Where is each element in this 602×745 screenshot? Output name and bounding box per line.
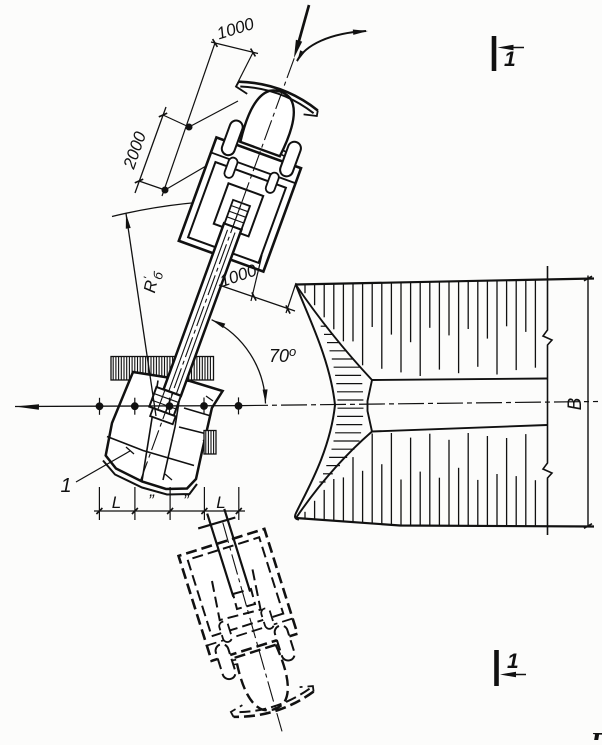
svg-text:Б: Б: [589, 728, 602, 740]
svg-text:1: 1: [507, 650, 519, 673]
svg-text:R'б: R'б: [138, 268, 166, 295]
svg-text:”: ”: [148, 491, 155, 510]
svg-text:1000: 1000: [215, 14, 257, 43]
svg-text:1: 1: [60, 475, 71, 497]
svg-text:70o: 70o: [269, 344, 296, 366]
svg-text:L: L: [112, 493, 121, 512]
svg-text:B: B: [565, 397, 586, 410]
svg-text:1: 1: [504, 48, 516, 71]
svg-text:L: L: [216, 493, 225, 512]
